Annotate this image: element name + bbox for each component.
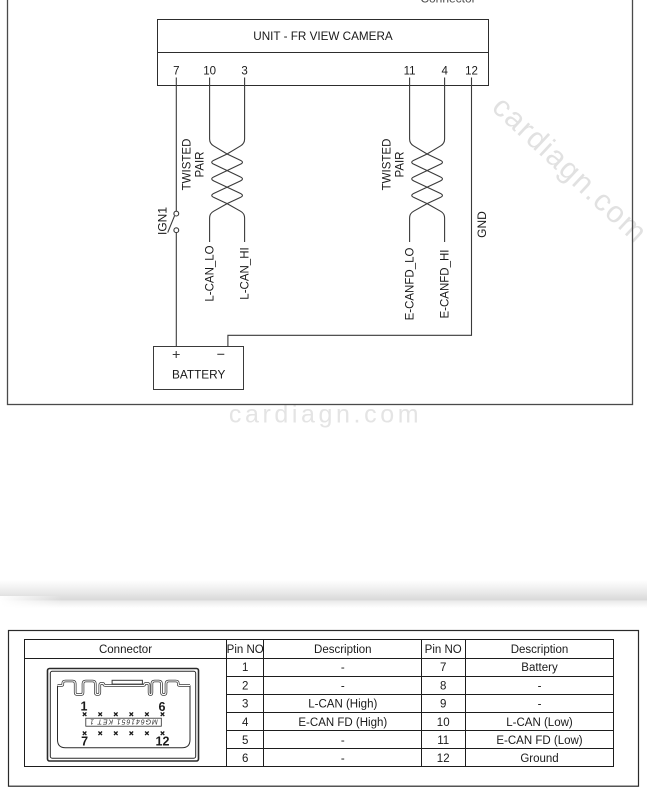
svg-text:L-CAN (Low): L-CAN (Low) [506, 717, 573, 729]
svg-text:PAIR: PAIR [195, 152, 207, 178]
svg-text:Connector: Connector [99, 644, 152, 656]
svg-text:4: 4 [242, 717, 249, 729]
svg-text:6: 6 [242, 753, 248, 765]
svg-text:3: 3 [242, 699, 248, 711]
svg-text:-: - [341, 680, 345, 692]
svg-text:Description: Description [511, 644, 569, 656]
svg-text:-: - [341, 753, 345, 765]
svg-text:10: 10 [437, 717, 450, 729]
svg-text:8: 8 [440, 680, 446, 692]
svg-text:L-CAN_HI: L-CAN_HI [240, 247, 252, 299]
svg-text:E-CANFD_HI: E-CANFD_HI [440, 249, 452, 318]
svg-text:E-CAN FD (Low): E-CAN FD (Low) [496, 735, 582, 747]
svg-text:E-CAN FD (High): E-CAN FD (High) [298, 717, 387, 729]
svg-text:-: - [538, 680, 542, 692]
svg-text:TWISTED: TWISTED [182, 139, 194, 191]
svg-text:Pin NO: Pin NO [425, 644, 462, 656]
svg-text:4: 4 [441, 66, 448, 78]
svg-text:TWISTED: TWISTED [382, 139, 394, 191]
svg-text:Connector: Connector [420, 0, 475, 5]
svg-text:12: 12 [465, 66, 478, 78]
svg-text:11: 11 [437, 735, 449, 747]
svg-text:2: 2 [242, 680, 248, 692]
svg-text:10: 10 [203, 66, 216, 78]
svg-text:BATTERY: BATTERY [172, 368, 225, 382]
svg-text:GND: GND [475, 211, 489, 238]
svg-text:Pin NO: Pin NO [227, 644, 264, 656]
svg-text:3: 3 [241, 66, 247, 78]
svg-text:1: 1 [242, 662, 248, 674]
svg-text:5: 5 [242, 735, 248, 747]
svg-text:7: 7 [81, 734, 88, 748]
svg-text:9: 9 [440, 699, 446, 711]
svg-text:-: - [538, 699, 542, 711]
svg-text:E-CANFD_LO: E-CANFD_LO [405, 248, 417, 321]
svg-text:Ground: Ground [520, 753, 558, 765]
svg-text:IGN1: IGN1 [156, 207, 170, 235]
svg-text:11: 11 [404, 66, 416, 78]
svg-text:1: 1 [81, 700, 88, 714]
svg-text:MG641651 KET 1: MG641651 KET 1 [89, 718, 158, 725]
svg-text:12: 12 [437, 753, 450, 765]
svg-text:L-CAN_LO: L-CAN_LO [205, 245, 217, 301]
svg-text:-: - [341, 735, 345, 747]
svg-text:Description: Description [314, 644, 372, 656]
svg-text:6: 6 [159, 700, 166, 714]
svg-text:12: 12 [156, 734, 170, 748]
svg-text:7: 7 [173, 66, 179, 78]
svg-text:L-CAN (High): L-CAN (High) [308, 699, 377, 711]
svg-text:PAIR: PAIR [395, 152, 407, 178]
svg-text:7: 7 [440, 662, 446, 674]
svg-text:Battery: Battery [521, 662, 558, 674]
svg-text:-: - [341, 662, 345, 674]
svg-text:UNIT - FR VIEW CAMERA: UNIT - FR VIEW CAMERA [253, 30, 393, 43]
